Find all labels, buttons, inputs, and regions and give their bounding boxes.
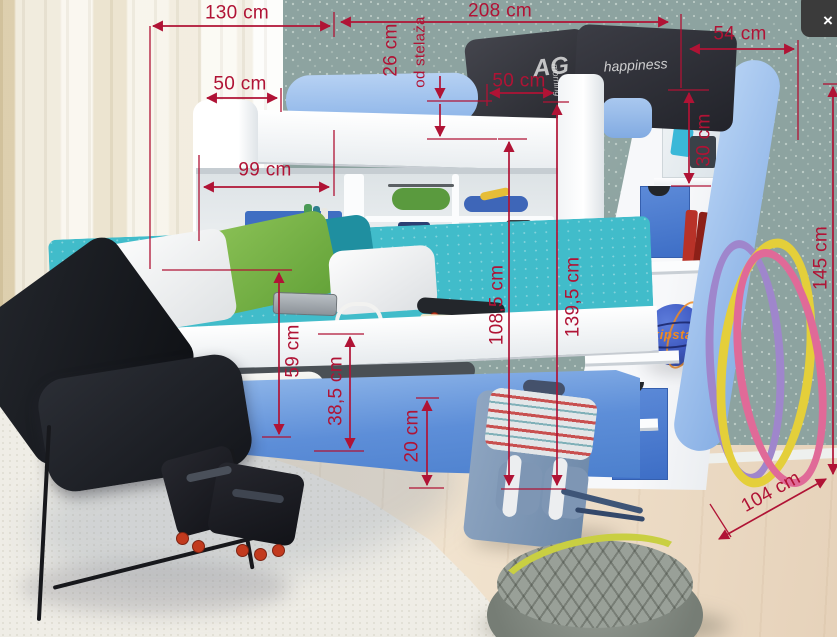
- dim-label-208: 208 cm: [468, 2, 532, 21]
- dim-label-20: 20 cm: [403, 409, 422, 462]
- dim-label-30: 30 cm: [695, 113, 714, 166]
- dim-label-130: 130 cm: [205, 4, 269, 23]
- close-button[interactable]: ×: [801, 0, 837, 37]
- dim-label-38: 38,5 cm: [327, 356, 346, 426]
- dim-99: [199, 130, 334, 241]
- product-image-viewer: kipsta AG morning happiness: [0, 0, 837, 637]
- dim-label-54: 54 cm: [713, 25, 766, 44]
- dimension-lines: [0, 0, 837, 637]
- dim-label-145: 145 cm: [812, 226, 831, 290]
- dim-label-50-head: 50 cm: [213, 75, 266, 94]
- dim-label-139: 139,5 cm: [564, 257, 583, 338]
- dim-label-59: 59 cm: [284, 324, 303, 377]
- close-icon: ×: [823, 0, 833, 49]
- dim-130: [150, 12, 334, 269]
- dim-label-26: 26 cm: [382, 23, 401, 76]
- dim-59: [162, 270, 292, 437]
- dim-label-50-rail: 50 cm: [492, 72, 545, 91]
- dim-label-99: 99 cm: [238, 161, 291, 180]
- dim-label-108: 108,5 cm: [488, 265, 507, 346]
- dim-108: [498, 139, 566, 489]
- dim-label-26-note: od stelaża: [413, 16, 428, 87]
